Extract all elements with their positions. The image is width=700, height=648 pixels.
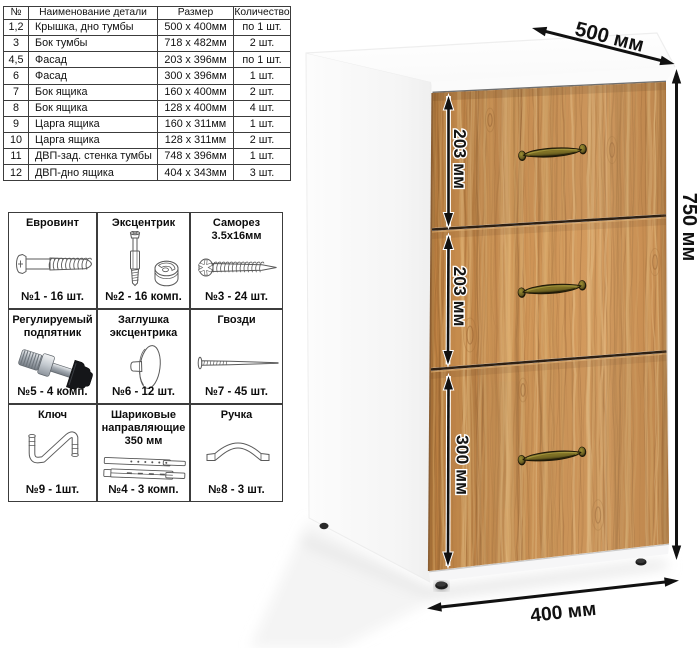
svg-text:300 мм: 300 мм [452, 435, 472, 495]
svg-text:203 мм: 203 мм [450, 267, 470, 327]
svg-text:400 мм: 400 мм [529, 599, 597, 627]
svg-text:750 мм: 750 мм [678, 193, 700, 262]
svg-text:203 мм: 203 мм [450, 129, 470, 189]
